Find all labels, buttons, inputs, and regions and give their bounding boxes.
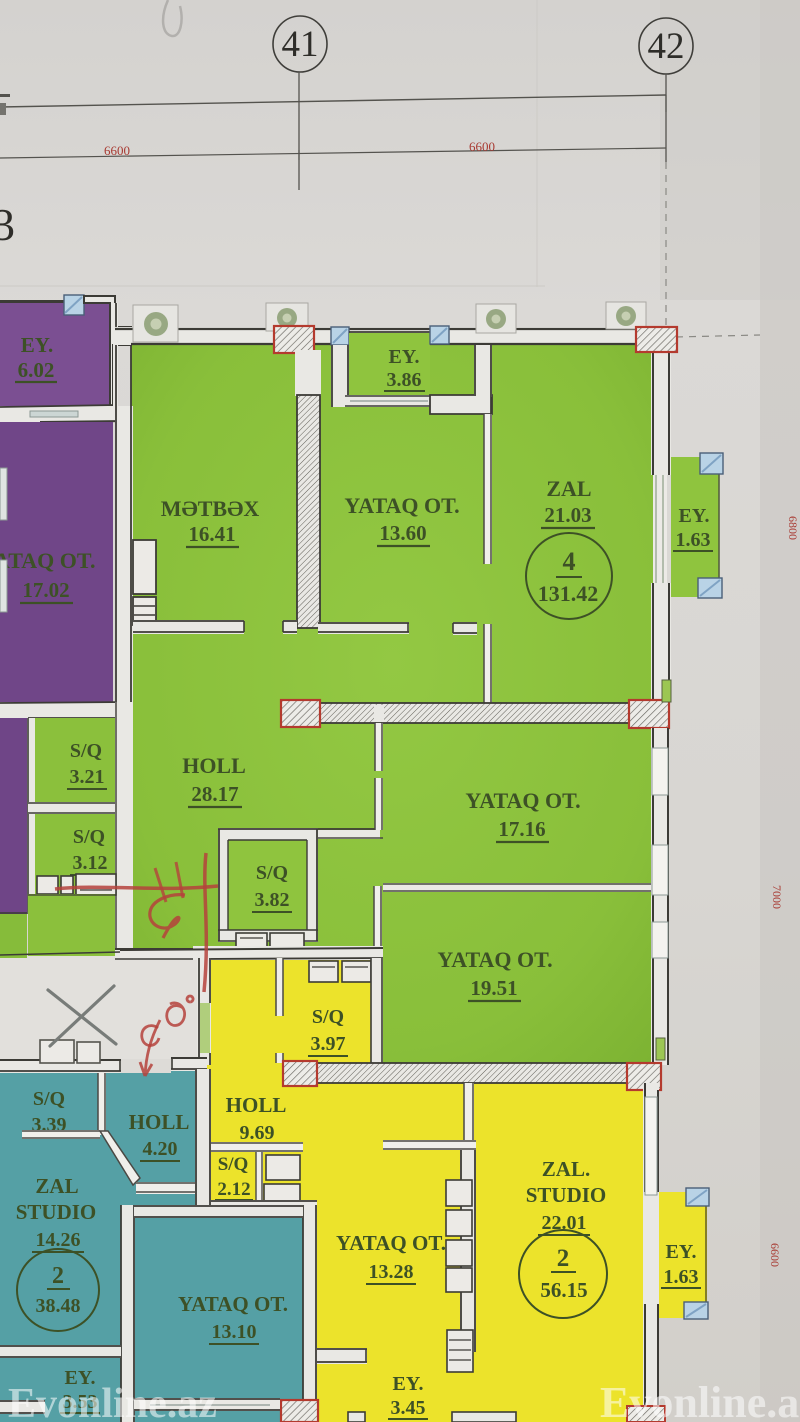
svg-text:S/Q: S/Q xyxy=(256,862,288,884)
svg-text:YATAQ OT.: YATAQ OT. xyxy=(344,493,459,518)
svg-text:1.63: 1.63 xyxy=(664,1266,699,1288)
svg-text:38.48: 38.48 xyxy=(36,1295,81,1317)
svg-text:3.86: 3.86 xyxy=(387,369,422,391)
svg-text:13.10: 13.10 xyxy=(212,1321,257,1343)
svg-text:28.17: 28.17 xyxy=(191,782,238,806)
svg-text:17.02: 17.02 xyxy=(22,578,69,602)
svg-text:HOLL: HOLL xyxy=(226,1093,287,1117)
svg-text:Evonline.az: Evonline.az xyxy=(8,1381,217,1422)
svg-text:6.02: 6.02 xyxy=(18,358,55,382)
svg-text:Evonline.az: Evonline.az xyxy=(600,1378,800,1422)
svg-text:STUDIO: STUDIO xyxy=(526,1183,607,1207)
svg-text:MƏTBƏX: MƏTBƏX xyxy=(161,496,260,521)
svg-text:3.97: 3.97 xyxy=(311,1033,346,1055)
svg-text:6600: 6600 xyxy=(469,139,495,154)
svg-text:13.60: 13.60 xyxy=(379,521,426,545)
svg-text:21.03: 21.03 xyxy=(544,503,591,527)
svg-text:ZAL.: ZAL. xyxy=(542,1157,590,1181)
svg-text:HOLL: HOLL xyxy=(129,1110,190,1134)
svg-text:2.12: 2.12 xyxy=(217,1179,250,1200)
svg-text:41: 41 xyxy=(282,24,319,65)
svg-text:EY.: EY. xyxy=(666,1241,697,1263)
svg-text:3.21: 3.21 xyxy=(70,766,105,788)
svg-text:4: 4 xyxy=(563,547,576,576)
svg-text:2: 2 xyxy=(557,1245,570,1272)
svg-text:131.42: 131.42 xyxy=(538,581,599,606)
svg-text:YATAQ OT.: YATAQ OT. xyxy=(336,1231,446,1255)
svg-text:YATAQ OT.: YATAQ OT. xyxy=(465,788,580,813)
svg-text:YATAQ OT.: YATAQ OT. xyxy=(437,947,552,972)
svg-text:13.28: 13.28 xyxy=(369,1261,414,1283)
svg-text:6600: 6600 xyxy=(768,1243,782,1267)
svg-text:ATAQ OT.: ATAQ OT. xyxy=(0,548,95,573)
svg-text:2: 2 xyxy=(52,1263,64,1289)
svg-text:S/Q: S/Q xyxy=(218,1154,249,1175)
svg-text:42: 42 xyxy=(648,26,685,67)
svg-text:4.20: 4.20 xyxy=(143,1138,178,1160)
svg-text:YATAQ OT.: YATAQ OT. xyxy=(178,1292,288,1316)
svg-text:S/Q: S/Q xyxy=(33,1088,65,1110)
svg-text:7000: 7000 xyxy=(770,885,784,909)
svg-text:ZAL: ZAL xyxy=(546,476,591,501)
svg-text:S/Q: S/Q xyxy=(73,826,105,848)
svg-text:1.63: 1.63 xyxy=(676,529,711,551)
svg-text:ZAL: ZAL xyxy=(35,1174,78,1198)
svg-text:19.51: 19.51 xyxy=(470,976,517,1000)
svg-text:EY.: EY. xyxy=(21,333,54,357)
svg-text:EY.: EY. xyxy=(393,1373,424,1395)
svg-text:S/Q: S/Q xyxy=(70,740,102,762)
svg-text:6600: 6600 xyxy=(104,143,130,158)
svg-text:3: 3 xyxy=(0,199,15,250)
svg-text:17.16: 17.16 xyxy=(498,817,545,841)
svg-text:EY.: EY. xyxy=(389,346,420,368)
svg-text:6800: 6800 xyxy=(786,516,800,540)
svg-text:3.82: 3.82 xyxy=(255,889,290,911)
svg-text:HOLL: HOLL xyxy=(182,753,246,778)
svg-text:STUDIO: STUDIO xyxy=(16,1200,97,1224)
svg-text:14.26: 14.26 xyxy=(36,1229,81,1251)
svg-text:16.41: 16.41 xyxy=(188,522,235,546)
svg-text:9.69: 9.69 xyxy=(240,1122,275,1144)
svg-text:S/Q: S/Q xyxy=(312,1006,344,1028)
svg-text:3.12: 3.12 xyxy=(73,852,108,874)
svg-text:EY.: EY. xyxy=(679,505,710,527)
svg-text:3.45: 3.45 xyxy=(391,1397,426,1419)
svg-text:56.15: 56.15 xyxy=(540,1278,587,1302)
